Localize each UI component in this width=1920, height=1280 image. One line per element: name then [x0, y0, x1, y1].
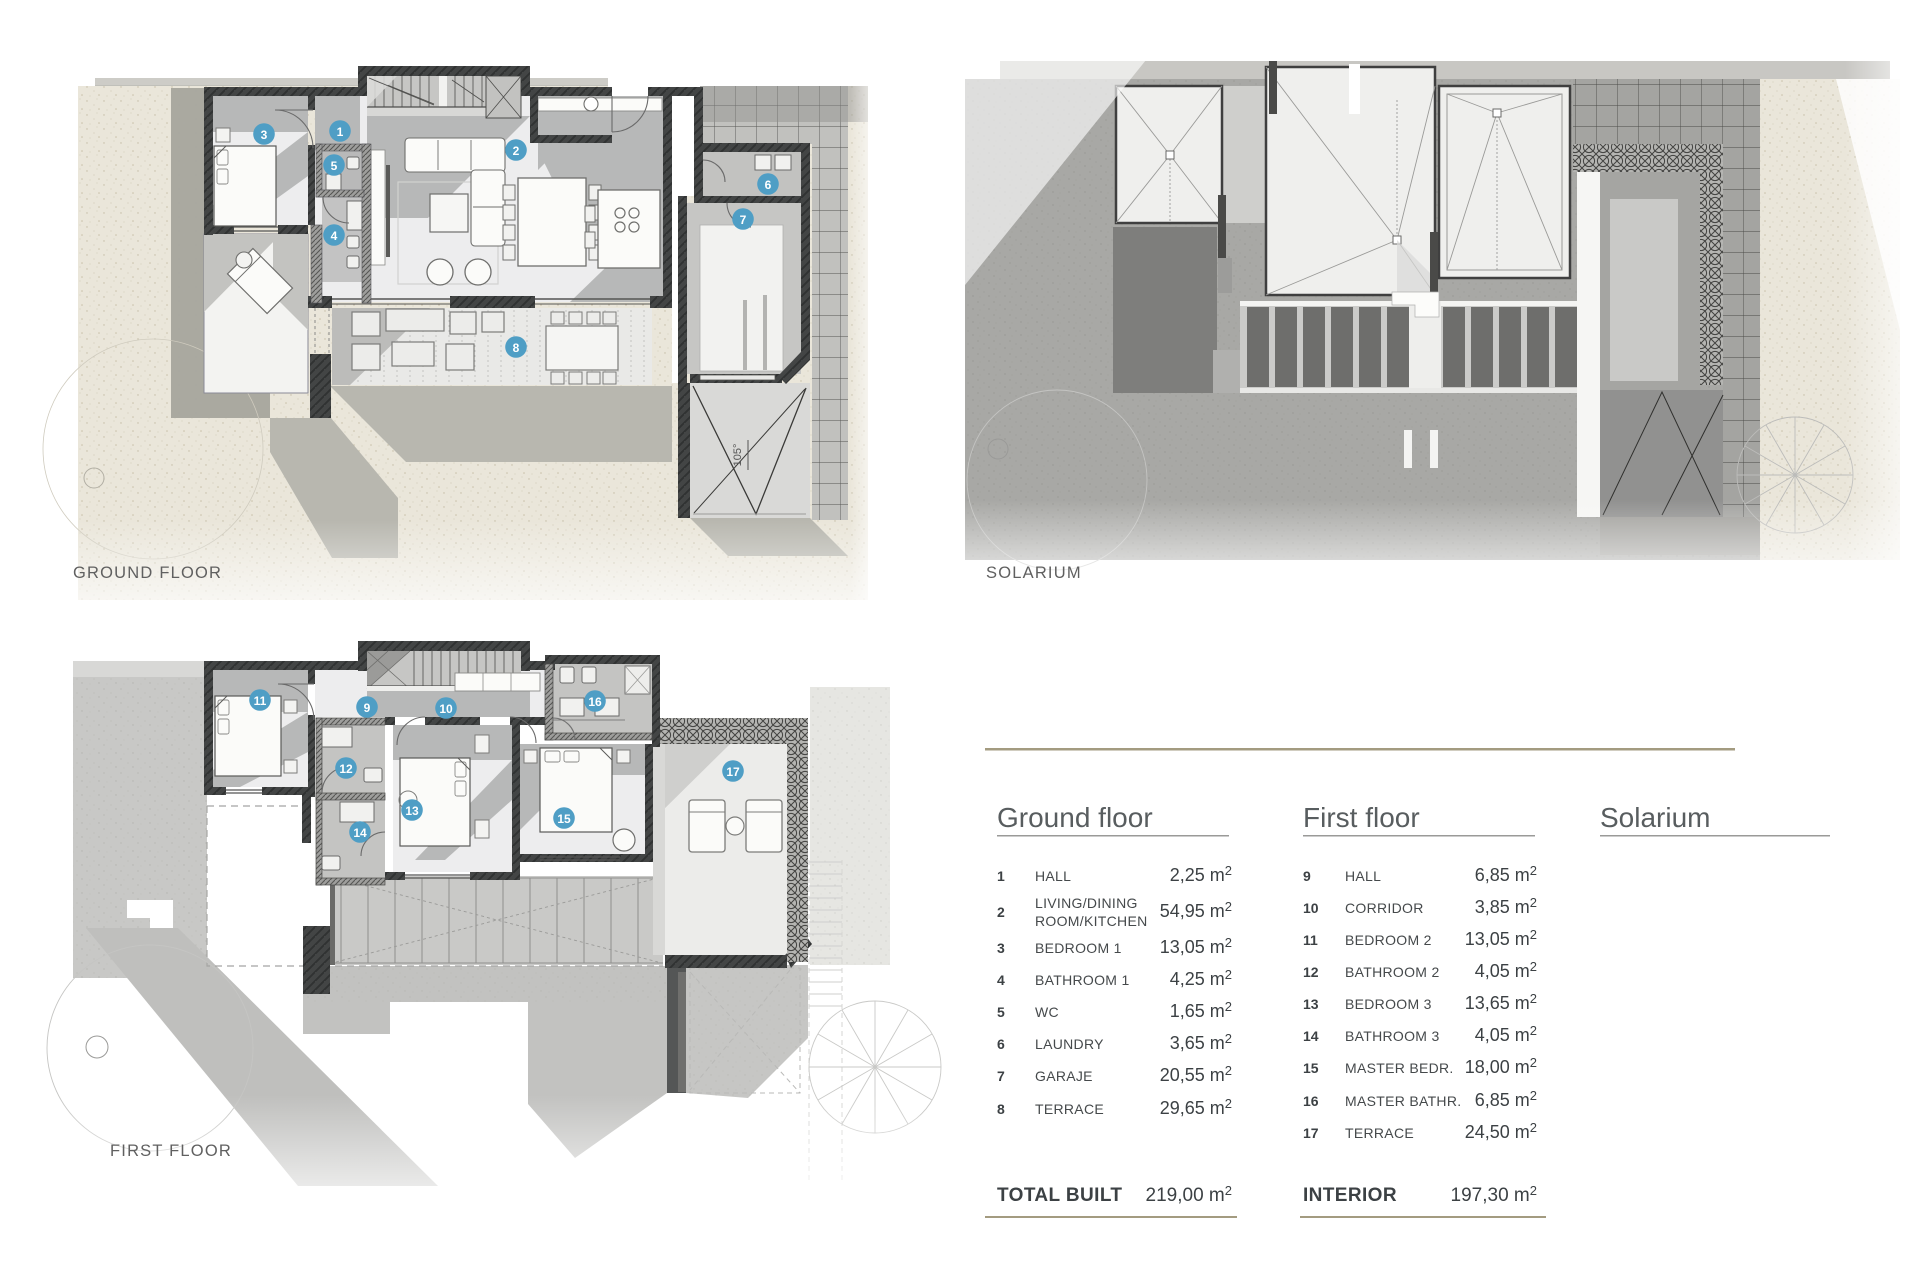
svg-text:2: 2 [997, 904, 1005, 920]
svg-text:29,65 m2: 29,65 m2 [1160, 1096, 1232, 1118]
svg-text:1,65 m2: 1,65 m2 [1170, 999, 1232, 1021]
svg-text:8: 8 [513, 341, 520, 355]
svg-text:24,50 m2: 24,50 m2 [1465, 1120, 1537, 1142]
svg-text:BEDROOM 3: BEDROOM 3 [1345, 996, 1432, 1012]
svg-text:4,05 m2: 4,05 m2 [1475, 1023, 1537, 1045]
svg-text:11: 11 [254, 694, 267, 708]
svg-text:TERRACE: TERRACE [1035, 1101, 1104, 1117]
svg-text:INTERIOR: INTERIOR [1303, 1185, 1397, 1206]
svg-text:4,05 m2: 4,05 m2 [1475, 959, 1537, 981]
svg-text:17: 17 [726, 765, 740, 779]
svg-text:11: 11 [1303, 932, 1318, 948]
svg-text:6: 6 [997, 1036, 1005, 1052]
svg-text:Solarium: Solarium [1600, 802, 1710, 833]
svg-text:GARAJE: GARAJE [1035, 1068, 1093, 1084]
svg-text:6,85 m2: 6,85 m2 [1475, 1088, 1537, 1110]
svg-text:5: 5 [997, 1004, 1005, 1020]
svg-text:9: 9 [364, 701, 371, 715]
svg-text:SOLARIUM: SOLARIUM [986, 564, 1082, 582]
svg-text:MASTER BATHR.: MASTER BATHR. [1345, 1093, 1461, 1109]
svg-text:15: 15 [557, 812, 571, 826]
svg-text:BEDROOM 2: BEDROOM 2 [1345, 932, 1432, 948]
svg-text:ROOM/KITCHEN: ROOM/KITCHEN [1035, 913, 1148, 929]
svg-text:GROUND FLOOR: GROUND FLOOR [73, 564, 222, 582]
svg-text:13,05 m2: 13,05 m2 [1160, 935, 1232, 957]
svg-text:HALL: HALL [1035, 868, 1071, 884]
svg-text:WC: WC [1035, 1004, 1059, 1020]
svg-text:13,05 m2: 13,05 m2 [1465, 927, 1537, 949]
svg-text:10: 10 [439, 702, 453, 716]
svg-text:9: 9 [1303, 868, 1311, 884]
svg-text:197,30 m2: 197,30 m2 [1451, 1183, 1537, 1206]
svg-text:First floor: First floor [1303, 802, 1420, 833]
svg-text:13: 13 [1303, 996, 1319, 1012]
svg-text:6: 6 [765, 178, 772, 192]
svg-text:13: 13 [405, 804, 419, 818]
svg-text:HALL: HALL [1345, 868, 1381, 884]
svg-text:4: 4 [331, 229, 338, 243]
svg-text:3,85 m2: 3,85 m2 [1475, 895, 1537, 917]
svg-text:FIRST FLOOR: FIRST FLOOR [110, 1142, 232, 1160]
svg-text:LIVING/DINING: LIVING/DINING [1035, 895, 1138, 911]
svg-text:15: 15 [1303, 1060, 1319, 1076]
svg-text:105°: 105° [732, 444, 744, 467]
svg-text:7: 7 [997, 1068, 1005, 1084]
svg-text:12: 12 [1303, 964, 1319, 980]
svg-text:4,25 m2: 4,25 m2 [1170, 967, 1232, 989]
svg-text:Ground floor: Ground floor [997, 802, 1153, 833]
svg-text:16: 16 [588, 695, 602, 709]
svg-text:219,00 m2: 219,00 m2 [1146, 1183, 1232, 1206]
svg-text:3: 3 [261, 128, 268, 142]
svg-text:13,65 m2: 13,65 m2 [1465, 991, 1537, 1013]
svg-text:18,00 m2: 18,00 m2 [1465, 1055, 1537, 1077]
svg-text:8: 8 [997, 1101, 1005, 1117]
svg-text:BATHROOM 3: BATHROOM 3 [1345, 1028, 1440, 1044]
svg-text:BATHROOM 2: BATHROOM 2 [1345, 964, 1440, 980]
svg-text:2: 2 [513, 144, 520, 158]
svg-text:14: 14 [1303, 1028, 1319, 1044]
svg-text:BEDROOM 1: BEDROOM 1 [1035, 940, 1122, 956]
svg-text:3,65 m2: 3,65 m2 [1170, 1031, 1232, 1053]
svg-text:14: 14 [353, 826, 367, 840]
svg-text:17: 17 [1303, 1125, 1319, 1141]
svg-text:BATHROOM 1: BATHROOM 1 [1035, 972, 1130, 988]
svg-text:20,55 m2: 20,55 m2 [1160, 1063, 1232, 1085]
svg-text:10: 10 [1303, 900, 1319, 916]
svg-text:LAUNDRY: LAUNDRY [1035, 1036, 1104, 1052]
svg-text:TOTAL BUILT: TOTAL BUILT [997, 1185, 1122, 1206]
svg-text:54,95 m2: 54,95 m2 [1160, 899, 1232, 921]
svg-text:1: 1 [337, 125, 344, 139]
svg-text:7: 7 [740, 213, 747, 227]
svg-text:6,85 m2: 6,85 m2 [1475, 863, 1537, 885]
svg-text:MASTER BEDR.: MASTER BEDR. [1345, 1060, 1454, 1076]
svg-text:4: 4 [997, 972, 1005, 988]
svg-text:12: 12 [339, 762, 353, 776]
svg-text:5: 5 [331, 159, 338, 173]
svg-text:TERRACE: TERRACE [1345, 1125, 1414, 1141]
svg-text:16: 16 [1303, 1093, 1319, 1109]
svg-text:3: 3 [997, 940, 1005, 956]
svg-text:CORRIDOR: CORRIDOR [1345, 900, 1424, 916]
svg-text:1: 1 [997, 868, 1005, 884]
svg-text:2,25 m2: 2,25 m2 [1170, 863, 1232, 885]
